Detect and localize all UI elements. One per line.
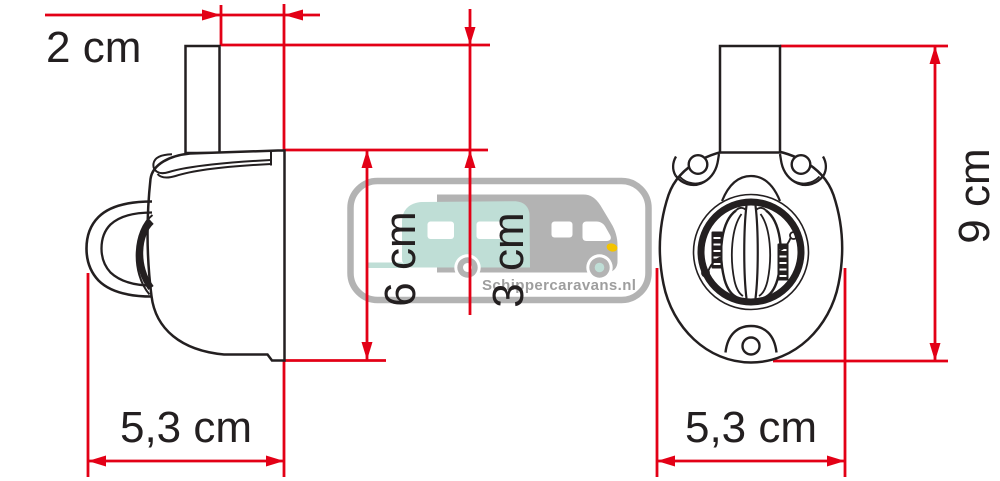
arrowhead <box>465 27 476 45</box>
dim-label-53cm-left: 5,3 cm <box>86 406 286 450</box>
dim-label-3cm: 3 cm <box>487 185 531 335</box>
technical-drawing-page: Schippercaravans.nl 2 cm 6 cm 3 cm 9 cm … <box>0 0 1000 481</box>
dim-label-53cm-right: 5,3 cm <box>651 406 851 450</box>
arrowhead <box>88 456 106 467</box>
arrowhead <box>284 10 303 21</box>
dim-label-6cm: 6 cm <box>379 184 423 334</box>
arrowhead <box>362 342 373 360</box>
arrowhead <box>362 150 373 168</box>
caravan-wheel <box>454 254 480 280</box>
screw-hole <box>792 155 811 174</box>
lock-front-view <box>660 46 842 363</box>
lock-stem-side <box>186 46 220 153</box>
arrowhead <box>266 456 284 467</box>
lock-body-side <box>148 151 285 361</box>
motorhome-side-window <box>552 222 573 238</box>
arrowhead <box>930 343 941 361</box>
screw-hole <box>689 155 708 174</box>
dim-label-2cm: 2 cm <box>46 26 141 70</box>
arrowhead <box>657 456 675 467</box>
dim-label-9cm: 9 cm <box>953 121 997 271</box>
arrowhead <box>930 46 941 64</box>
lock-side-view <box>87 46 285 361</box>
arrowhead <box>465 150 476 168</box>
caravan-window <box>428 222 455 240</box>
arrowhead <box>202 10 221 21</box>
arrowhead <box>827 456 845 467</box>
lock-stem-front <box>720 46 780 153</box>
screw-hole <box>743 338 760 355</box>
